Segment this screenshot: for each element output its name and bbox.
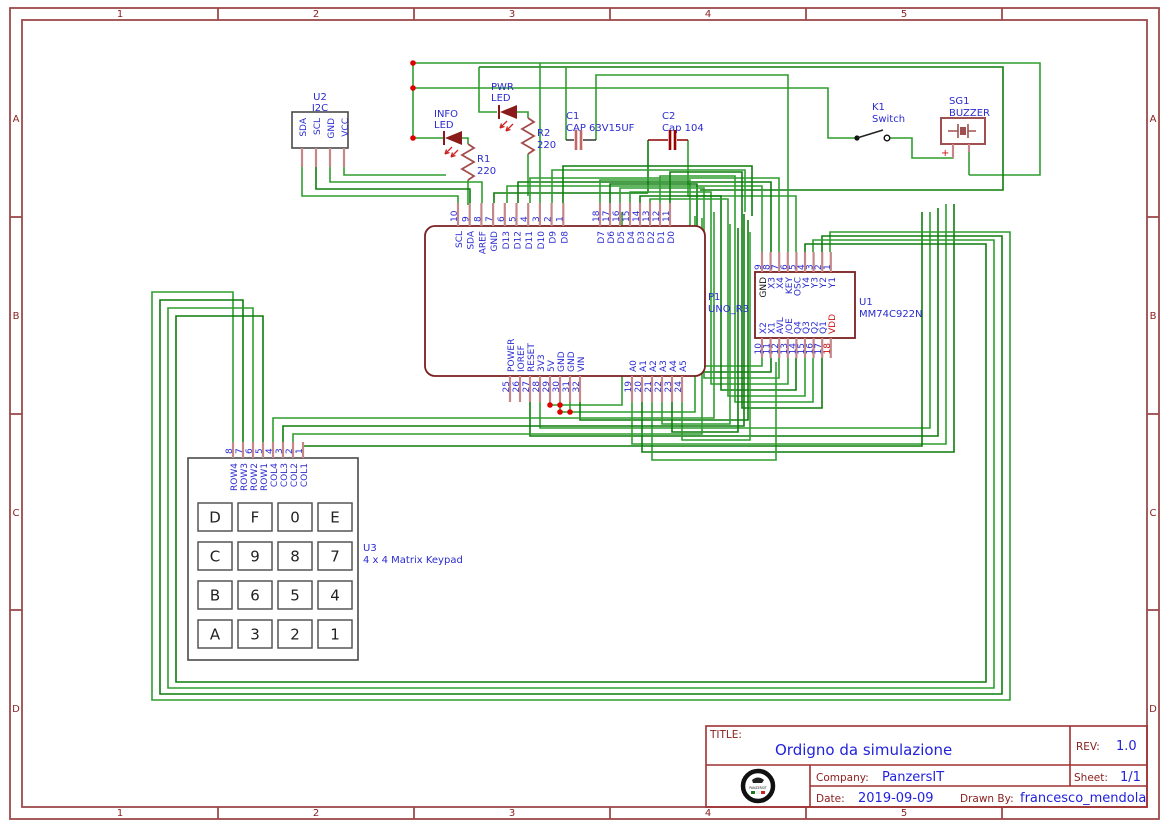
keypad-key-label: A	[210, 626, 221, 644]
pin-text: GND	[557, 351, 567, 372]
component-label: PWR	[491, 82, 514, 93]
junction-dot	[410, 60, 416, 66]
component-u3-keypad[interactable]: U3 4 x 4 Matrix Keypad 8ROW47ROW36ROW25R…	[188, 442, 463, 660]
pin-text: 32	[572, 381, 582, 392]
pin-text: 18	[592, 210, 602, 222]
keypad-key-label: E	[330, 509, 339, 527]
pin-text: 29	[542, 381, 552, 393]
ref-designator: SG1	[949, 96, 969, 107]
pin-text: ROW2	[250, 463, 260, 491]
junction-dot	[547, 402, 553, 408]
pin-text: COL3	[280, 463, 290, 487]
pin-text: ROW1	[260, 463, 270, 491]
schematic-sheet: 1 2 3 4 5 1 2 3 4 5 A B C D A B C D	[0, 0, 1169, 827]
pin-text: 7	[485, 216, 495, 222]
pin-text: 11	[662, 211, 672, 222]
pin-text: 1	[295, 448, 305, 454]
pin-text: A3	[659, 360, 669, 372]
pin-text: VCC	[341, 118, 351, 137]
component-value: Switch	[872, 114, 905, 125]
wire-segment[interactable]	[344, 167, 446, 175]
sheet-title: Ordigno da simulazione	[775, 741, 952, 759]
ref-designator: U3	[363, 543, 377, 554]
pin-text: D7	[597, 231, 607, 244]
pin-text: GND	[567, 351, 577, 372]
row-ref: D	[1149, 704, 1157, 715]
pin-text: D2	[647, 231, 657, 244]
pin-text: POWER	[507, 339, 517, 372]
pin-text: 6	[497, 216, 507, 222]
company-label: Company:	[816, 772, 869, 784]
led-emission-arrows	[500, 121, 513, 131]
ref-designator: U2	[313, 92, 327, 103]
keypad-key-label: 7	[330, 548, 340, 566]
pin-text: D10	[537, 231, 547, 250]
pin-text: 7	[235, 448, 245, 454]
junction-dot	[557, 409, 563, 415]
component-value: Cap 104	[662, 123, 704, 134]
pin-text: A1	[639, 360, 649, 372]
col-ref: 5	[901, 9, 907, 20]
keypad-key-label: 0	[290, 509, 300, 527]
keypad-key-label: 8	[290, 548, 300, 566]
wire-segment[interactable]	[563, 166, 752, 216]
keypad-pins: 8ROW47ROW36ROW25ROW14COL43COL32COL21COL1	[225, 442, 310, 491]
junction-dot	[567, 409, 573, 415]
component-info-led[interactable]: INFO LED	[434, 109, 462, 157]
keypad-key-label: 4	[330, 587, 340, 605]
pin-text: 2	[285, 448, 295, 454]
component-label: LED	[434, 120, 454, 131]
component-value: MM74C922N	[859, 309, 923, 320]
junction-dot	[557, 402, 563, 408]
pin-text: GND	[490, 231, 500, 252]
pin-text: 9	[462, 216, 472, 222]
col-ref: 4	[705, 9, 711, 20]
pin-text: GND	[327, 118, 337, 139]
keypad-key-label: 6	[250, 587, 260, 605]
company-value: PanzersIT	[882, 770, 944, 785]
led-symbol[interactable]	[445, 131, 462, 145]
pin-text: Y1	[828, 277, 838, 289]
component-k1-switch[interactable]: K1 Switch	[854, 102, 905, 141]
pin-text: AREF	[478, 231, 488, 254]
pin-text: ROW3	[240, 463, 250, 491]
keypad-key-label: 3	[250, 626, 260, 644]
row-ref: B	[13, 311, 20, 322]
wire-segment[interactable]	[302, 167, 458, 203]
wire-segment[interactable]	[316, 167, 470, 203]
pin-text: D5	[617, 231, 627, 244]
row-ref: C	[1150, 508, 1157, 519]
pin-text: COL1	[300, 463, 310, 487]
ref-designator: R2	[537, 128, 550, 139]
component-value: 4 x 4 Matrix Keypad	[363, 555, 463, 566]
pin-text: VDD	[828, 314, 838, 334]
row-ref: C	[13, 508, 20, 519]
component-r2[interactable]: R2 220	[522, 118, 556, 154]
component-u1[interactable]: U1 MM74C922N 9GND8X37X46KEY5OSC4Y43Y32Y2…	[754, 252, 923, 358]
ref-designator: U1	[859, 297, 873, 308]
pin-text: 10	[450, 210, 460, 222]
junction-dot	[410, 135, 416, 141]
keypad-key-label: B	[210, 587, 220, 605]
pin-text: D8	[560, 231, 570, 244]
keypad-key-label: F	[251, 509, 260, 527]
pin-text: 28	[532, 381, 542, 393]
sheet-value: 1/1	[1120, 770, 1141, 785]
col-ref: 3	[509, 808, 515, 819]
pin-text: 4	[265, 448, 275, 454]
row-ref: A	[13, 114, 20, 125]
ref-designator: C1	[566, 111, 579, 122]
pin-text: 6	[245, 448, 255, 454]
drawn-by-value: francesco_mendola	[1020, 791, 1146, 806]
component-label: INFO	[434, 109, 458, 120]
row-ref: D	[12, 704, 20, 715]
rev-label: REV:	[1076, 741, 1100, 753]
col-ref: 3	[509, 9, 515, 20]
col-ref: 1	[117, 9, 123, 20]
title-block: TITLE: Ordigno da simulazione REV: 1.0 C…	[706, 726, 1147, 807]
switch-lever[interactable]	[857, 130, 883, 138]
pin-text: 12	[652, 211, 662, 222]
pin-text: 31	[562, 381, 572, 392]
resistor-symbol[interactable]	[462, 144, 474, 180]
pin-text: A0	[629, 360, 639, 372]
pin-text: A5	[679, 360, 689, 372]
pin-text: 26	[512, 381, 522, 393]
date-value: 2019-09-09	[858, 791, 934, 806]
component-label: LED	[491, 93, 511, 104]
component-value: 220	[477, 166, 496, 177]
col-ref: 2	[313, 9, 319, 20]
pin-text: 14	[632, 210, 642, 222]
pin-text: 5V	[547, 359, 557, 372]
pin-text: D1	[657, 231, 667, 244]
pin-text: 19	[624, 381, 634, 393]
pin-text: 17	[602, 211, 612, 222]
led-emission-arrows	[445, 147, 458, 157]
buzzer-element	[960, 127, 966, 135]
led-symbol[interactable]	[500, 105, 517, 119]
pin-text: SCL	[313, 118, 323, 135]
col-ref: 1	[117, 808, 123, 819]
date-label: Date:	[816, 793, 845, 805]
pin-text: 1	[823, 264, 833, 270]
pin-text: 22	[654, 381, 664, 392]
pin-text: SDA	[299, 117, 309, 136]
pin-text: ROW4	[230, 463, 240, 491]
junction-dot	[410, 85, 416, 91]
keypad-key-label: C	[210, 548, 220, 566]
pin-text: A4	[669, 360, 679, 372]
pin-text: D9	[549, 231, 559, 244]
pin-text: 16	[612, 210, 622, 222]
pin-text: 25	[502, 381, 512, 392]
buzzer-plus: +	[941, 148, 949, 159]
pin-text: D0	[667, 231, 677, 244]
pin-text: 4	[520, 216, 530, 222]
keypad-key-label: 5	[290, 587, 300, 605]
title-label: TITLE:	[709, 729, 742, 741]
pin-text: 8	[473, 216, 483, 222]
pin-text: SDA	[467, 230, 477, 249]
wire-segment[interactable]	[330, 167, 482, 203]
row-ref: A	[1150, 114, 1157, 125]
pin-text: 18	[823, 343, 833, 355]
component-r1[interactable]: R1 220	[462, 144, 496, 180]
uno-top-right-pins: 18D717D616D515D414D313D212D111D0	[592, 203, 677, 244]
ref-designator: P1	[708, 292, 720, 303]
pin-text: COL4	[270, 463, 280, 487]
pin-text: RESET	[527, 343, 537, 372]
pin-text: A2	[649, 360, 659, 372]
col-ref: 5	[901, 808, 907, 819]
component-c1[interactable]: C1 CAP 63V15UF	[566, 111, 635, 150]
pin-text: D11	[525, 231, 535, 249]
pin-text: 8	[225, 448, 235, 454]
pin-text: COL2	[290, 463, 300, 487]
keypad-key-label: 2	[290, 626, 300, 644]
pin-text: 3V3	[537, 354, 547, 372]
ref-designator: C2	[662, 111, 675, 122]
keypad-key-label: D	[209, 509, 221, 527]
pin-text: 1	[555, 216, 565, 222]
switch-throw	[884, 135, 890, 141]
company-logo: PANZERSIT	[743, 771, 773, 801]
pin-text: 23	[664, 381, 674, 392]
component-u2-i2c[interactable]: U2 I2C SDASCLGNDVCC	[292, 92, 351, 167]
row-ref: B	[1150, 311, 1157, 322]
pin-text: 3	[532, 216, 542, 222]
pin-text: 20	[634, 381, 644, 393]
component-value: 220	[537, 140, 556, 151]
col-ref: 2	[313, 808, 319, 819]
component-uno[interactable]: P1 UNO_R3 10SCL9SDA8AREF7GND6D135D124D11…	[425, 203, 749, 402]
component-value: UNO_R3	[708, 304, 749, 315]
pin-text: 21	[644, 381, 654, 392]
pin-text: 3	[275, 448, 285, 454]
pin-text: 5	[509, 216, 519, 222]
pin-text: VIN	[577, 356, 587, 372]
pin-text: SCL	[455, 231, 465, 248]
keypad-key-label: 9	[250, 548, 260, 566]
pin-text: D4	[627, 231, 637, 244]
uno-bottom-right-pins: 19A020A121A222A323A424A5	[624, 360, 689, 402]
col-ref: 4	[705, 808, 711, 819]
pin-text: 5	[255, 448, 265, 454]
rev-value: 1.0	[1116, 739, 1137, 754]
component-c2[interactable]: C2 Cap 104	[648, 111, 704, 150]
drawn-by-label: Drawn By:	[960, 793, 1014, 805]
component-pwr-led[interactable]: PWR LED	[491, 82, 517, 131]
component-sg1-buzzer[interactable]: SG1 BUZZER +	[941, 96, 990, 159]
pin-text: 30	[552, 381, 562, 393]
ref-designator: R1	[477, 154, 490, 165]
sheet-label: Sheet:	[1074, 772, 1108, 784]
pin-text: D13	[502, 231, 512, 249]
ref-designator: K1	[872, 102, 885, 113]
pin-text: 13	[642, 211, 652, 222]
pin-text: 2	[544, 216, 554, 222]
keypad-key-label: 1	[330, 626, 340, 644]
pin-text: 15	[622, 211, 632, 222]
logo-text: PANZERSIT	[749, 786, 767, 790]
pin-text: 27	[522, 381, 532, 392]
pin-text: IOREF	[517, 345, 527, 372]
pin-text: 24	[674, 381, 684, 393]
pin-text: D3	[637, 231, 647, 244]
pin-text: D6	[607, 231, 617, 244]
resistor-symbol[interactable]	[522, 118, 534, 154]
wire-segment[interactable]	[494, 140, 648, 203]
pin-text: D12	[514, 231, 524, 249]
